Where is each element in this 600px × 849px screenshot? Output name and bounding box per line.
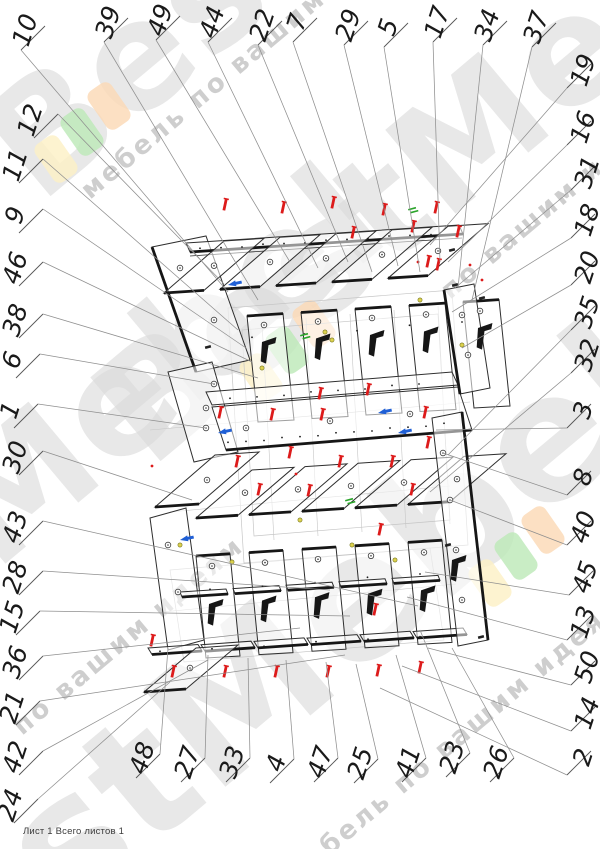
pilot-dot bbox=[263, 645, 265, 647]
cam-hole-center bbox=[244, 492, 246, 494]
red-dot bbox=[481, 279, 484, 282]
part-number: 20 bbox=[568, 247, 600, 286]
cam-hole-center bbox=[179, 267, 181, 269]
pilot-dot bbox=[283, 395, 285, 397]
pilot-dot bbox=[371, 430, 373, 432]
pilot-dot bbox=[251, 336, 253, 338]
screw-mark bbox=[286, 446, 294, 459]
pilot-dot bbox=[262, 243, 264, 245]
cam-hole-center bbox=[264, 562, 266, 564]
pilot-dot bbox=[418, 383, 420, 385]
cam-hole-center bbox=[461, 314, 463, 316]
pilot-dot bbox=[419, 636, 421, 638]
pilot-dot bbox=[461, 321, 463, 323]
pilot-dot bbox=[388, 235, 390, 237]
pilot-dot bbox=[353, 431, 355, 433]
red-dot bbox=[151, 465, 154, 468]
cam-hole-center bbox=[409, 413, 411, 415]
cam-hole-center bbox=[350, 485, 352, 487]
sheet-info: Лист 1 Всего листов 1 bbox=[23, 826, 124, 837]
cam-hole-center bbox=[213, 319, 215, 321]
pilot-dot bbox=[199, 247, 201, 249]
pilot-dot bbox=[209, 588, 211, 590]
pilot-dot bbox=[227, 441, 229, 443]
red-dot bbox=[295, 473, 298, 476]
yellow-dot bbox=[418, 298, 422, 302]
cam-hole-center bbox=[317, 321, 319, 323]
pilot-dot bbox=[367, 238, 369, 240]
cam-hole-center bbox=[479, 310, 481, 312]
cam-hole-center bbox=[370, 555, 372, 557]
pilot-dot bbox=[425, 425, 427, 427]
cam-hole-center bbox=[263, 324, 265, 326]
pilot-dot bbox=[367, 638, 369, 640]
part-number: 14 bbox=[568, 693, 600, 732]
pilot-dot bbox=[419, 573, 421, 575]
pilot-dot bbox=[245, 441, 247, 443]
yellow-dot bbox=[393, 558, 397, 562]
yellow-dot bbox=[298, 518, 302, 522]
pilot-dot bbox=[283, 243, 285, 245]
pilot-dot bbox=[335, 432, 337, 434]
pilot-dot bbox=[364, 388, 366, 390]
part-number: 29 bbox=[329, 5, 366, 44]
part-number: 38 bbox=[0, 300, 34, 339]
cam-hole-center bbox=[205, 407, 207, 409]
part-number: 15 bbox=[0, 597, 31, 636]
part-number: 5 bbox=[372, 15, 404, 39]
pilot-dot bbox=[407, 426, 409, 428]
cam-hole-center bbox=[425, 314, 427, 316]
yellow-dot bbox=[260, 366, 264, 370]
yellow-dot bbox=[178, 543, 182, 547]
pilot-dot bbox=[315, 641, 317, 643]
cam-hole-center bbox=[455, 549, 457, 551]
pilot-dot bbox=[389, 427, 391, 429]
cam-hole-center bbox=[381, 254, 383, 256]
pilot-dot bbox=[281, 437, 283, 439]
pilot-dot bbox=[256, 396, 258, 398]
pilot-dot bbox=[391, 385, 393, 387]
part-number: 46 bbox=[0, 248, 34, 287]
pilot-dot bbox=[220, 247, 222, 249]
cam-hole-center bbox=[206, 479, 208, 481]
cam-hole-center bbox=[456, 478, 458, 480]
cam-hole-center bbox=[167, 544, 169, 546]
yellow-dot bbox=[460, 343, 464, 347]
cam-hole-center bbox=[189, 667, 191, 669]
pilot-dot bbox=[317, 435, 319, 437]
cam-hole-center bbox=[403, 482, 405, 484]
cam-hole-center bbox=[325, 258, 327, 260]
cam-hole-center bbox=[211, 565, 213, 567]
cam-hole-center bbox=[269, 261, 271, 263]
cam-hole-center bbox=[437, 250, 439, 252]
pilot-dot bbox=[409, 324, 411, 326]
part-number: 6 bbox=[0, 348, 28, 372]
cam-hole-center bbox=[245, 427, 247, 429]
pilot-dot bbox=[263, 440, 265, 442]
pilot-dot bbox=[159, 650, 161, 652]
cam-hole-center bbox=[213, 265, 215, 267]
pilot-dot bbox=[346, 239, 348, 241]
cam-hole-center bbox=[423, 552, 425, 554]
part-number: 9 bbox=[0, 203, 31, 227]
pilot-dot bbox=[443, 422, 445, 424]
cam-hole-center bbox=[371, 317, 373, 319]
red-dot bbox=[469, 264, 472, 267]
part-number: 36 bbox=[0, 642, 34, 681]
part-number: 18 bbox=[568, 200, 600, 239]
pilot-dot bbox=[229, 397, 231, 399]
assembly-sheet: BestMebelBestMebelBestMebelBestMebelмебе… bbox=[0, 0, 600, 849]
pilot-dot bbox=[367, 576, 369, 578]
pilot-dot bbox=[241, 246, 243, 248]
part-number: 2 bbox=[567, 745, 599, 769]
pilot-dot bbox=[325, 239, 327, 241]
pilot-dot bbox=[310, 391, 312, 393]
pilot-dot bbox=[430, 234, 432, 236]
part-number: 45 bbox=[566, 557, 600, 596]
cam-hole-center bbox=[297, 489, 299, 491]
cam-hole-center bbox=[461, 599, 463, 601]
cam-hole-center bbox=[317, 558, 319, 560]
pilot-dot bbox=[211, 648, 213, 650]
exploded-view-drawing: BestMebelBestMebelBestMebelBestMebelмебе… bbox=[0, 0, 600, 849]
pilot-dot bbox=[299, 436, 301, 438]
pilot-dot bbox=[356, 330, 358, 332]
pilot-dot bbox=[337, 390, 339, 392]
cam-hole-center bbox=[177, 591, 179, 593]
yellow-dot bbox=[350, 543, 354, 547]
yellow-dot bbox=[330, 338, 334, 342]
yellow-dot bbox=[323, 330, 327, 334]
cam-hole-center bbox=[467, 354, 469, 356]
part-number: 25 bbox=[341, 743, 378, 782]
part-number: 17 bbox=[418, 2, 455, 41]
pilot-dot bbox=[409, 234, 411, 236]
cam-hole-center bbox=[329, 420, 331, 422]
